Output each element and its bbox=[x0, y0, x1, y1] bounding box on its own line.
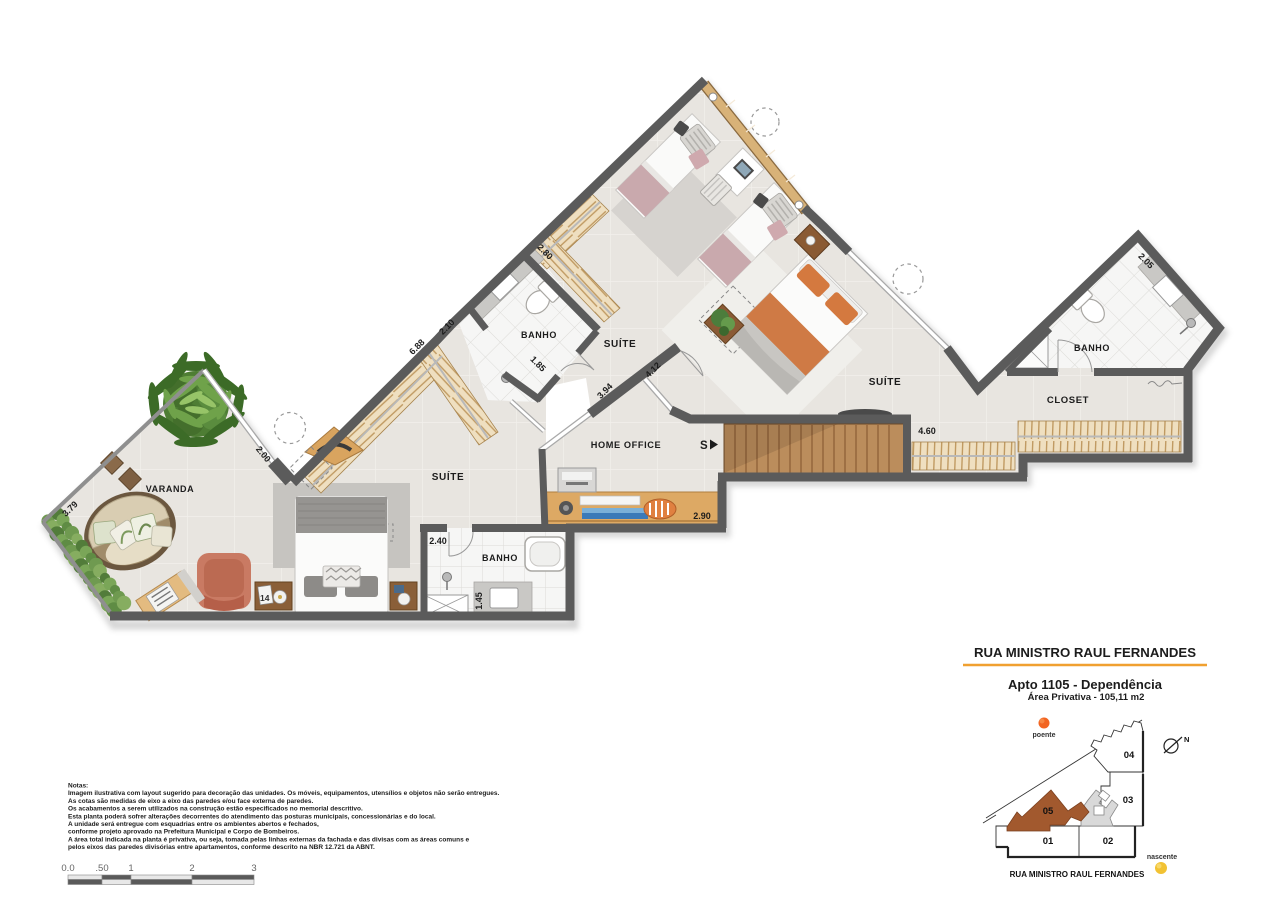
svg-text:Apto 1105 - Dependência: Apto 1105 - Dependência bbox=[1008, 677, 1163, 692]
svg-text:Área Privativa - 105,11 m2: Área Privativa - 105,11 m2 bbox=[1028, 692, 1145, 703]
svg-text:Notas:: Notas: bbox=[68, 783, 88, 790]
svg-text:CLOSET: CLOSET bbox=[1047, 395, 1089, 406]
svg-text:nascente: nascente bbox=[1147, 854, 1177, 861]
svg-text:2.40: 2.40 bbox=[429, 536, 447, 546]
svg-text:RUA MINISTRO RAUL FERNANDES: RUA MINISTRO RAUL FERNANDES bbox=[974, 645, 1196, 660]
svg-text:VARANDA: VARANDA bbox=[146, 484, 195, 494]
svg-text:01: 01 bbox=[1043, 836, 1054, 847]
svg-text:poente: poente bbox=[1033, 732, 1056, 739]
svg-text:04: 04 bbox=[1124, 750, 1135, 761]
svg-text:HOME OFFICE: HOME OFFICE bbox=[591, 440, 661, 450]
svg-text:1.45: 1.45 bbox=[474, 592, 484, 610]
svg-text:14: 14 bbox=[260, 593, 270, 603]
svg-text:2.90: 2.90 bbox=[693, 511, 711, 521]
svg-text:N: N bbox=[1184, 735, 1189, 744]
svg-text:RUA MINISTRO RAUL FERNANDES: RUA MINISTRO RAUL FERNANDES bbox=[1010, 870, 1145, 879]
svg-text:Esta planta poderá sofrer alte: Esta planta poderá sofrer alterações dec… bbox=[68, 813, 436, 820]
svg-text:BANHO: BANHO bbox=[1074, 343, 1110, 353]
svg-text:As cotas são medidas de eixo a: As cotas são medidas de eixo a eixo das … bbox=[68, 798, 313, 805]
svg-text:.50: .50 bbox=[95, 863, 108, 874]
svg-text:3: 3 bbox=[251, 863, 256, 874]
svg-text:Imagem ilustrativa com layout: Imagem ilustrativa com layout sugerido p… bbox=[68, 790, 499, 797]
svg-text:02: 02 bbox=[1103, 836, 1114, 847]
svg-text:2: 2 bbox=[189, 863, 194, 874]
svg-text:BANHO: BANHO bbox=[482, 553, 518, 563]
svg-text:Os acabamentos a serem utiliza: Os acabamentos a serem utilizados na con… bbox=[68, 806, 363, 813]
svg-text:1: 1 bbox=[128, 863, 133, 874]
svg-text:SUÍTE: SUÍTE bbox=[432, 470, 464, 483]
svg-text:SUÍTE: SUÍTE bbox=[604, 337, 636, 350]
svg-text:4.60: 4.60 bbox=[918, 426, 936, 436]
svg-text:conforme projeto aprovado na P: conforme projeto aprovado na Prefeitura … bbox=[68, 829, 299, 836]
svg-text:0.0: 0.0 bbox=[61, 863, 74, 874]
svg-text:S: S bbox=[700, 440, 708, 452]
svg-text:A área total indicada na plant: A área total indicada na planta é privat… bbox=[68, 836, 470, 843]
svg-text:03: 03 bbox=[1123, 795, 1134, 806]
svg-text:SUÍTE: SUÍTE bbox=[869, 375, 901, 388]
svg-text:A unidade será entregue com es: A unidade será entregue com esquadrias e… bbox=[68, 821, 319, 828]
svg-text:pelos eixos das paredes divisó: pelos eixos das paredes divisórias entre… bbox=[68, 844, 375, 851]
svg-text:05: 05 bbox=[1043, 806, 1054, 817]
svg-text:BANHO: BANHO bbox=[521, 330, 557, 340]
